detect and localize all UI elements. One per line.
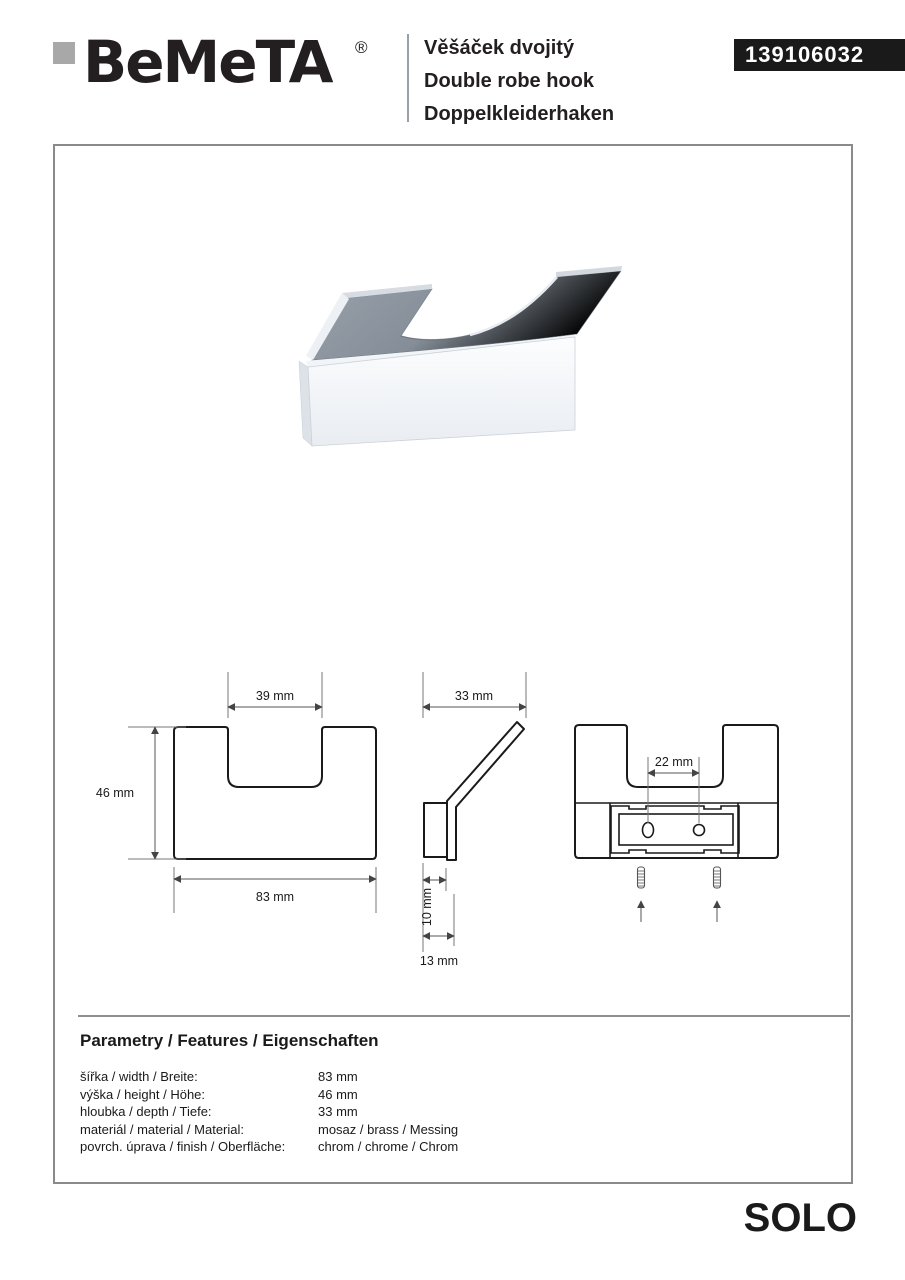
dimension-label-39mm: 39 mm [256,689,294,703]
param-value: 46 mm [318,1086,358,1104]
param-label: výška / height / Höhe: [80,1086,318,1104]
registered-trademark-icon: ® [355,38,368,58]
dimension-label-46mm: 46 mm [96,786,134,800]
series-name: SOLO [744,1196,857,1241]
front-view-outline [174,727,376,859]
table-row: výška / height / Höhe: 46 mm [80,1086,458,1104]
screw-right-icon [714,867,721,922]
dimension-label-33mm: 33 mm [455,689,493,703]
dimension-label-83mm: 83 mm [256,890,294,904]
parameters-divider [78,1015,850,1017]
param-label: materiál / material / Material: [80,1121,318,1139]
side-view-hook-arm [447,722,524,860]
table-row: hloubka / depth / Tiefe: 33 mm [80,1103,458,1121]
param-value: chrom / chrome / Chrom [318,1138,458,1156]
brand-logo: BeMeTA [83,28,332,96]
brand-mark-icon [53,42,75,64]
technical-drawings: 39 mm 46 mm 83 mm 33 mm 10 mm 13 mm [60,660,860,990]
table-row: povrch. úprava / finish / Oberfläche: ch… [80,1138,458,1156]
product-code-badge: 139106032 [734,39,905,71]
header-divider [407,34,409,122]
product-titles: Věšáček dvojitý Double robe hook Doppelk… [424,32,614,131]
param-value: mosaz / brass / Messing [318,1121,458,1139]
screw-left-icon [638,867,645,922]
product-title-en: Double robe hook [424,65,614,98]
front-view-drawing: 39 mm 46 mm 83 mm [96,672,376,913]
back-view-outline [575,725,778,858]
product-photo [270,240,650,470]
param-label: povrch. úprava / finish / Oberfläche: [80,1138,318,1156]
param-label: hloubka / depth / Tiefe: [80,1103,318,1121]
product-title-de: Doppelkleiderhaken [424,98,614,131]
dimension-label-13mm: 13 mm [420,954,458,968]
back-view-drawing: 22 mm [575,725,778,922]
product-title-cs: Věšáček dvojitý [424,32,614,65]
parameters-heading: Parametry / Features / Eigenschaften [80,1031,379,1051]
param-value: 83 mm [318,1068,358,1086]
table-row: šířka / width / Breite: 83 mm [80,1068,458,1086]
datasheet-page: BeMeTA ® Věšáček dvojitý Double robe hoo… [0,0,905,1280]
table-row: materiál / material / Material: mosaz / … [80,1121,458,1139]
param-label: šířka / width / Breite: [80,1068,318,1086]
dimension-label-22mm: 22 mm [655,755,693,769]
param-value: 33 mm [318,1103,358,1121]
parameters-table: šířka / width / Breite: 83 mm výška / he… [80,1068,458,1156]
side-view-drawing: 33 mm 10 mm 13 mm [420,672,526,968]
side-view-wall-block [424,803,447,857]
dimension-label-10mm: 10 mm [420,888,434,926]
